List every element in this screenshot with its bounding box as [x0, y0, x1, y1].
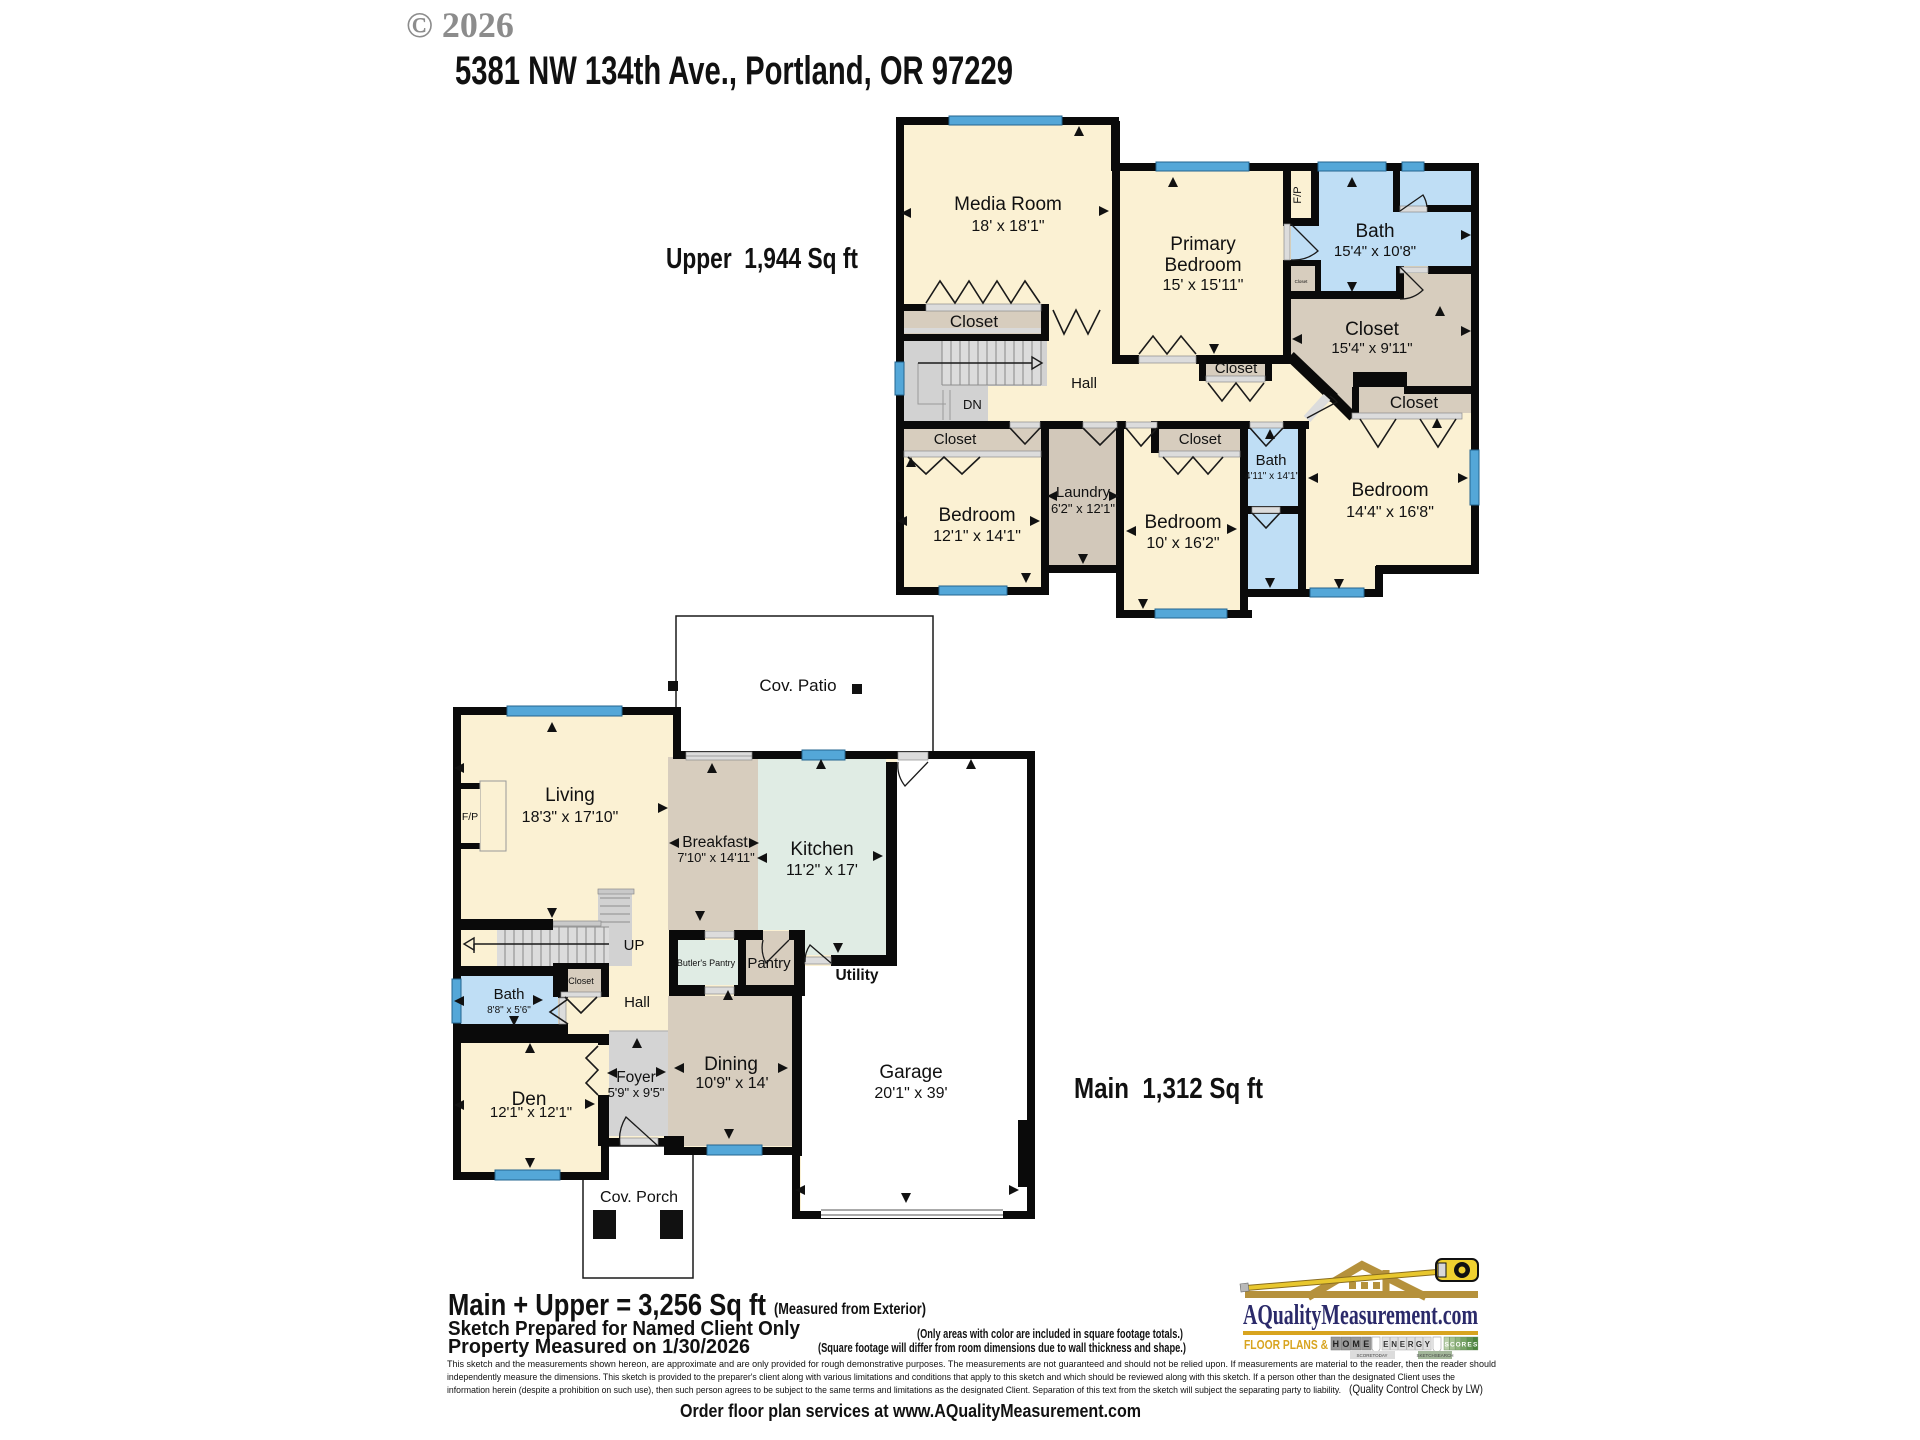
svg-text:Breakfast: Breakfast: [682, 834, 748, 851]
svg-text:12'1" x 14'1": 12'1" x 14'1": [933, 528, 1021, 545]
svg-text:S: S: [1473, 1342, 1478, 1349]
svg-text:Bedroom: Bedroom: [938, 505, 1015, 526]
svg-text:N: N: [1391, 1340, 1397, 1349]
svg-text:© 2026: © 2026: [406, 5, 514, 45]
svg-text:Closet: Closet: [1390, 393, 1438, 412]
svg-text:(Only areas with color are inc: (Only areas with color are included in s…: [917, 1327, 1183, 1341]
svg-text:Closet: Closet: [1179, 431, 1222, 448]
svg-text:10'9" x 14': 10'9" x 14': [695, 1075, 768, 1092]
svg-text:11'2" x 17': 11'2" x 17': [786, 862, 858, 879]
svg-text:E: E: [1400, 1340, 1406, 1349]
svg-text:Cov. Patio: Cov. Patio: [759, 676, 836, 695]
svg-text:8'8" x 5'6": 8'8" x 5'6": [487, 1005, 531, 1016]
svg-text:FLOOR PLANS &: FLOOR PLANS &: [1244, 1337, 1328, 1352]
svg-text:G: G: [1416, 1340, 1422, 1349]
svg-text:Main + Upper = 3,256 Sq ft: Main + Upper = 3,256 Sq ft: [448, 1287, 766, 1322]
svg-text:independently measure the dime: independently measure the dimensions. Th…: [447, 1372, 1455, 1383]
svg-text:E: E: [1467, 1342, 1472, 1349]
svg-text:7'10" x 14'11": 7'10" x 14'11": [677, 850, 755, 865]
svg-text:Property Measured on 1/30/2026: Property Measured on 1/30/2026: [448, 1336, 750, 1358]
svg-text:M: M: [1352, 1339, 1360, 1349]
svg-text:Media Room: Media Room: [954, 194, 1062, 215]
svg-text:R: R: [1408, 1340, 1414, 1349]
svg-text:DN: DN: [963, 397, 982, 412]
svg-text:Dining: Dining: [704, 1054, 758, 1075]
svg-text:UP: UP: [624, 937, 645, 954]
svg-text:F/P: F/P: [1292, 186, 1304, 203]
svg-text:Butler's Pantry: Butler's Pantry: [677, 958, 736, 968]
svg-text:Utility: Utility: [835, 967, 878, 984]
svg-text:(Quality Control Check by LW): (Quality Control Check by LW): [1349, 1382, 1483, 1396]
svg-text:Closet: Closet: [950, 312, 998, 331]
svg-text:R: R: [1461, 1342, 1466, 1349]
svg-text:15' x 15'11": 15' x 15'11": [1163, 277, 1244, 294]
svg-text:15'4" x 9'11": 15'4" x 9'11": [1331, 340, 1412, 357]
svg-text:O: O: [1342, 1339, 1349, 1349]
svg-text:Bath: Bath: [1355, 221, 1394, 242]
svg-text:Pantry: Pantry: [747, 955, 791, 972]
svg-text:18' x 18'1": 18' x 18'1": [971, 218, 1044, 235]
svg-text:E: E: [1363, 1339, 1369, 1349]
svg-text:Upper 1,944 Sq ft: Upper 1,944 Sq ft: [666, 243, 858, 275]
svg-text:SCORETODAY: SCORETODAY: [1356, 1353, 1387, 1358]
svg-text:C: C: [1450, 1342, 1455, 1349]
svg-text:15'4" x 10'8": 15'4" x 10'8": [1334, 243, 1416, 260]
svg-text:Living: Living: [545, 785, 595, 806]
svg-text:18'3" x 17'10": 18'3" x 17'10": [522, 809, 619, 826]
svg-text:Bath: Bath: [1256, 452, 1287, 469]
svg-text:O: O: [1456, 1342, 1461, 1349]
svg-text:E: E: [1383, 1340, 1389, 1349]
svg-text:14'4" x 16'8": 14'4" x 16'8": [1346, 504, 1434, 521]
svg-text:Bath: Bath: [494, 986, 525, 1003]
svg-text:Garage: Garage: [879, 1062, 942, 1083]
svg-text:6'2" x 12'1": 6'2" x 12'1": [1051, 501, 1115, 516]
svg-text:(Square footage will differ fr: (Square footage will differ from room di…: [818, 1341, 1186, 1355]
svg-text:Bedroom: Bedroom: [1164, 255, 1241, 276]
svg-text:4'11" x 14'1": 4'11" x 14'1": [1245, 471, 1300, 482]
svg-text:Closet: Closet: [1215, 360, 1258, 377]
svg-text:F/P: F/P: [462, 811, 478, 823]
svg-text:20'1" x 39': 20'1" x 39': [874, 1085, 947, 1102]
svg-text:Cov. Porch: Cov. Porch: [600, 1189, 678, 1206]
svg-text:Closet: Closet: [934, 431, 977, 448]
svg-text:S: S: [1445, 1342, 1450, 1349]
svg-text:Hall: Hall: [1071, 375, 1097, 392]
svg-text:Hall: Hall: [624, 994, 650, 1011]
svg-text:Closet: Closet: [1295, 279, 1309, 284]
svg-text:Primary: Primary: [1170, 234, 1236, 255]
svg-text:Closet: Closet: [1345, 319, 1400, 340]
svg-text:12'1" x 12'1": 12'1" x 12'1": [490, 1104, 572, 1121]
svg-text:Order floor plan services at w: Order floor plan services at www.AQualit…: [680, 1400, 1141, 1421]
svg-text:10' x 16'2": 10' x 16'2": [1146, 535, 1219, 552]
svg-text:Kitchen: Kitchen: [790, 839, 853, 860]
svg-text:Main 1,312 Sq ft: Main 1,312 Sq ft: [1074, 1073, 1263, 1105]
svg-text:5'9" x 9'5": 5'9" x 9'5": [608, 1085, 665, 1100]
svg-text:SKETCHSEARCH: SKETCHSEARCH: [1416, 1353, 1453, 1358]
svg-text:information herein (despite a: information herein (despite a prohibitio…: [447, 1385, 1341, 1396]
svg-text:Foyer: Foyer: [616, 1069, 656, 1086]
svg-text:Bedroom: Bedroom: [1144, 512, 1221, 533]
svg-text:AQualityMeasurement.com: AQualityMeasurement.com: [1243, 1299, 1478, 1331]
svg-text:Bedroom: Bedroom: [1351, 480, 1428, 501]
svg-text:Y: Y: [1425, 1340, 1431, 1349]
svg-text:(Measured from Exterior): (Measured from Exterior): [774, 1301, 926, 1318]
svg-text:Laundry: Laundry: [1056, 484, 1111, 501]
svg-text:This sketch and the measuremen: This sketch and the measurements shown h…: [447, 1359, 1496, 1370]
svg-text:Closet: Closet: [568, 976, 594, 986]
svg-text:H: H: [1332, 1339, 1339, 1349]
svg-text:5381 NW 134th Ave., Portland,: 5381 NW 134th Ave., Portland, OR 97229: [455, 49, 1013, 93]
